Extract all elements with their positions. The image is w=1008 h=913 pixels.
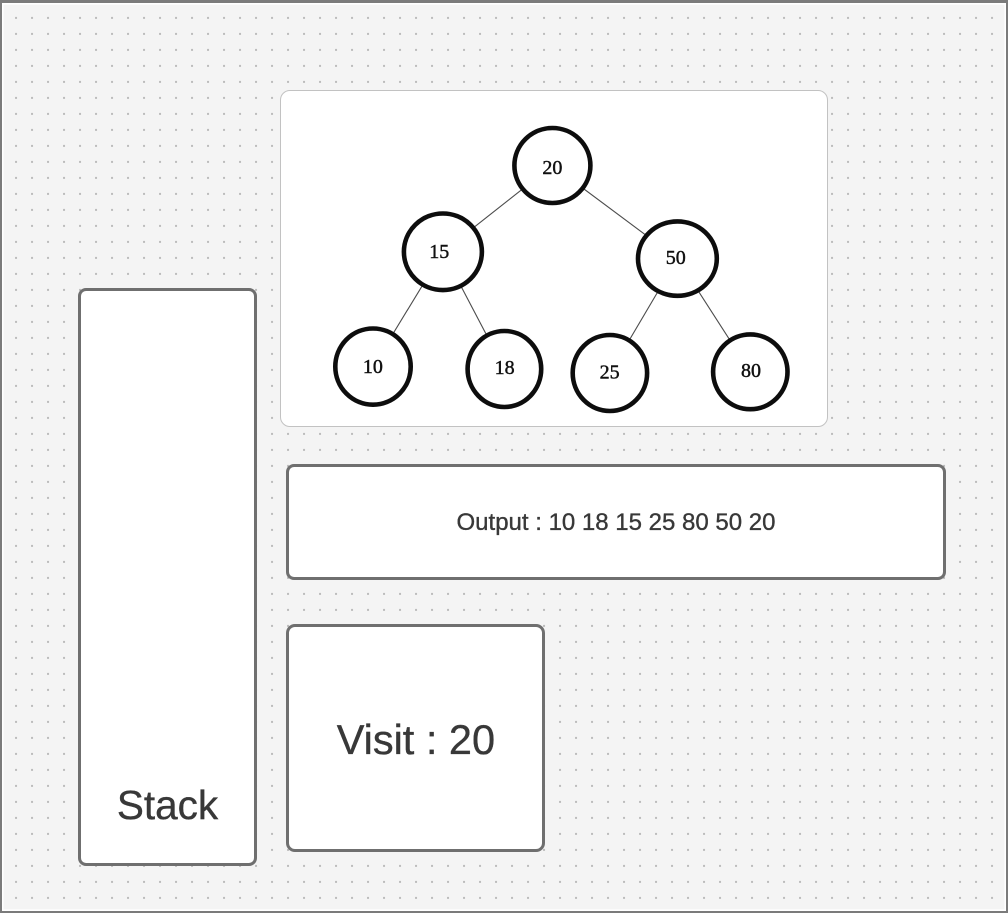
svg-text:20: 20 <box>542 157 562 179</box>
svg-text:25: 25 <box>600 362 620 384</box>
svg-text:10: 10 <box>363 356 383 378</box>
svg-text:18: 18 <box>495 357 515 379</box>
svg-text:50: 50 <box>666 247 686 269</box>
svg-text:80: 80 <box>741 360 761 382</box>
svg-text:15: 15 <box>429 241 449 263</box>
